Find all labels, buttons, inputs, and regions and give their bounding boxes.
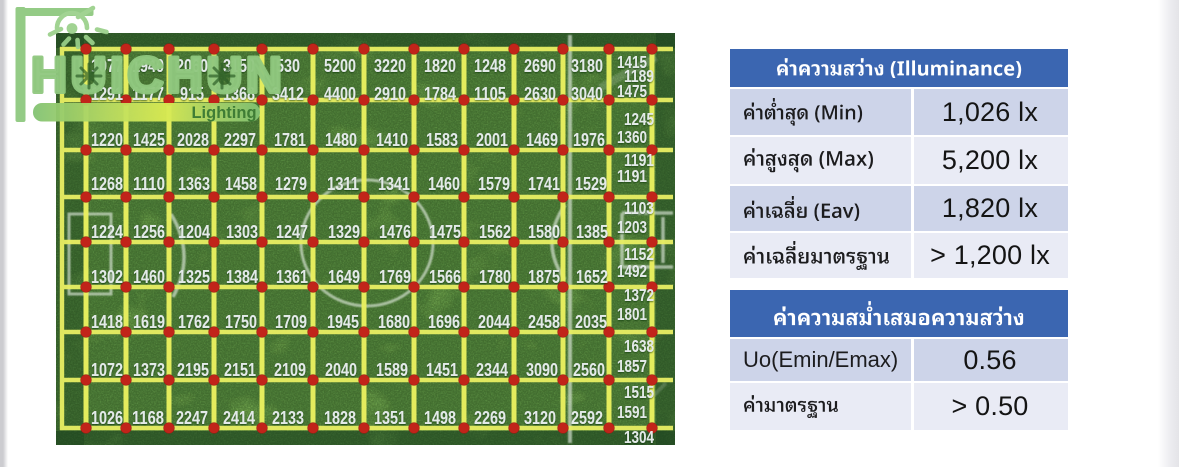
svg-text:1460: 1460 [428,174,460,194]
svg-text:1580: 1580 [528,222,560,242]
svg-text:1103: 1103 [624,198,654,218]
svg-text:1248: 1248 [474,56,506,76]
svg-text:1476: 1476 [379,222,411,242]
svg-text:5200: 5200 [324,56,356,76]
svg-text:1529: 1529 [575,174,607,194]
svg-text:1583: 1583 [426,130,458,150]
svg-text:1384: 1384 [226,267,258,287]
svg-text:1820: 1820 [424,56,456,76]
svg-text:HUICHUN: HUICHUN [31,47,285,103]
svg-text:1579: 1579 [478,174,510,194]
svg-text:1562: 1562 [479,222,511,242]
svg-text:2458: 2458 [528,312,560,332]
svg-text:1875: 1875 [528,267,560,287]
svg-text:1649: 1649 [328,267,360,287]
svg-text:2690: 2690 [524,56,556,76]
svg-text:2035: 2035 [575,312,607,332]
svg-text:1857: 1857 [617,356,647,376]
svg-text:1591: 1591 [617,402,647,422]
svg-text:1480: 1480 [325,130,357,150]
svg-text:1247: 1247 [276,222,308,242]
svg-text:1709: 1709 [275,312,307,332]
svg-text:1460: 1460 [133,267,165,287]
svg-text:1304: 1304 [624,427,654,445]
svg-text:2592: 2592 [571,408,603,428]
svg-text:1451: 1451 [426,360,458,380]
svg-text:1110: 1110 [133,174,165,194]
svg-text:1589: 1589 [376,360,408,380]
svg-text:1341: 1341 [378,174,410,194]
svg-text:1619: 1619 [133,312,165,332]
svg-text:1203: 1203 [617,217,647,237]
svg-text:1385: 1385 [576,222,608,242]
svg-text:1372: 1372 [624,285,654,305]
svg-text:1492: 1492 [617,261,647,281]
svg-text:1566: 1566 [429,267,461,287]
svg-text:1311: 1311 [327,174,359,194]
svg-text:1696: 1696 [428,312,460,332]
svg-text:1762: 1762 [178,312,210,332]
svg-text:2910: 2910 [374,84,406,104]
svg-text:2151: 2151 [224,360,256,380]
svg-text:1224: 1224 [91,222,123,242]
svg-text:2001: 2001 [476,130,508,150]
svg-text:2195: 2195 [177,360,209,380]
svg-text:1363: 1363 [178,174,210,194]
svg-text:1945: 1945 [327,312,359,332]
svg-text:1279: 1279 [275,174,307,194]
svg-text:1652: 1652 [576,267,608,287]
svg-text:1072: 1072 [91,360,123,380]
svg-text:4400: 4400 [324,84,356,104]
svg-text:1680: 1680 [378,312,410,332]
svg-text:1750: 1750 [225,312,257,332]
svg-text:1191: 1191 [624,150,654,170]
svg-text:1976: 1976 [573,130,605,150]
svg-text:1638: 1638 [624,336,654,356]
svg-text:2133: 2133 [272,408,304,428]
svg-text:1303: 1303 [226,222,258,242]
svg-text:1741: 1741 [528,174,560,194]
svg-text:1458: 1458 [225,174,257,194]
svg-text:1410: 1410 [376,130,408,150]
svg-text:2630: 2630 [524,84,556,104]
svg-text:2560: 2560 [573,360,605,380]
svg-text:1361: 1361 [276,267,308,287]
svg-text:1498: 1498 [424,408,456,428]
svg-text:1256: 1256 [133,222,165,242]
svg-text:1189: 1189 [624,66,654,86]
svg-text:3120: 3120 [524,408,556,428]
svg-text:1245: 1245 [624,109,654,129]
svg-text:1373: 1373 [133,360,165,380]
svg-text:1780: 1780 [479,267,511,287]
svg-text:1105: 1105 [474,84,506,104]
svg-text:2040: 2040 [325,360,357,380]
svg-text:1168: 1168 [132,408,164,428]
svg-text:1418: 1418 [91,312,123,332]
svg-text:1784: 1784 [424,84,456,104]
svg-text:1329: 1329 [328,222,360,242]
svg-text:1769: 1769 [379,267,411,287]
svg-text:3180: 3180 [571,56,603,76]
svg-text:3040: 3040 [571,84,603,104]
svg-text:1302: 1302 [91,267,123,287]
svg-text:3090: 3090 [526,360,558,380]
svg-text:2044: 2044 [478,312,510,332]
svg-text:2269: 2269 [474,408,506,428]
svg-text:2414: 2414 [223,408,255,428]
svg-text:3220: 3220 [374,56,406,76]
svg-text:1204: 1204 [178,222,210,242]
svg-text:1515: 1515 [624,382,654,402]
svg-text:1475: 1475 [429,222,461,242]
svg-text:1026: 1026 [91,408,123,428]
svg-text:1801: 1801 [617,304,647,324]
svg-text:2109: 2109 [274,360,306,380]
svg-text:2247: 2247 [176,408,208,428]
svg-text:1828: 1828 [324,408,356,428]
svg-text:2344: 2344 [476,360,508,380]
svg-text:1268: 1268 [91,174,123,194]
svg-text:Lighting: Lighting [191,104,256,122]
svg-text:1360: 1360 [617,127,647,147]
svg-text:1351: 1351 [374,408,406,428]
svg-text:1152: 1152 [624,244,654,264]
svg-text:1469: 1469 [526,130,558,150]
svg-text:1325: 1325 [178,267,210,287]
